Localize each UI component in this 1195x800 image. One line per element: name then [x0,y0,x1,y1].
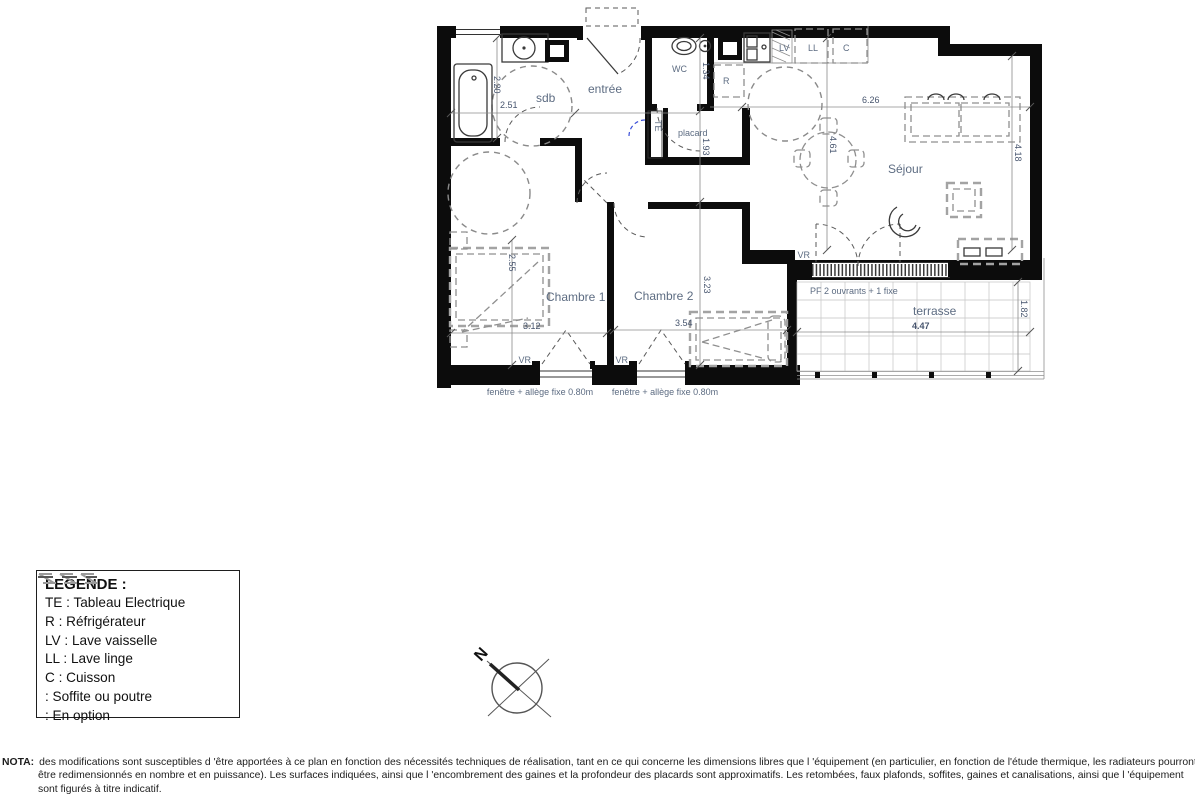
label-c: C [843,43,850,53]
sejour-armchair [889,207,920,237]
sejour-bay-window [806,261,954,278]
label-chambre1: Chambre 1 [546,290,606,304]
dim-wc-height: 1.34 [701,62,711,80]
entry-landing [586,8,638,26]
nota-text: NOTA:des modifications sont susceptibles… [2,756,1195,796]
pf-leaf-2 [858,224,900,266]
legend-item-ll: LL : Lave linge [45,650,231,669]
pf-leaf-1 [816,224,858,266]
label-chambre2: Chambre 2 [634,289,694,303]
label-lv: LV [779,43,789,53]
legend-item-te: TE : Tableau Electrique [45,594,231,613]
sdb-door [505,107,540,142]
sejour-sofa [905,94,1020,142]
chambre2-bed [690,312,787,366]
sejour-dining-table [794,118,864,206]
label-pf: PF 2 ouvrants + 1 fixe [810,286,898,296]
label-vr-1: VR [518,355,531,365]
nota-prefix: NOTA: [2,757,34,768]
bedroom-window-1 [532,361,595,383]
label-fenetre-2: fenêtre + allège fixe 0.80m [612,387,718,397]
dim-sdb-width: 2.51 [500,100,518,110]
bedroom-window-2 [629,361,690,383]
label-placard: placard [678,128,708,138]
dim-chambre1-width: 3.12 [523,321,541,331]
legend-item-c: C : Cuisson [45,669,231,688]
dim-sdb-height: 2.20 [492,76,502,94]
legend-item-r: R : Réfrigérateur [45,613,231,632]
label-te: TE [653,120,663,132]
label-entree: entrée [588,82,622,96]
top-window [456,30,500,35]
label-vr-3: VR [797,250,810,260]
toilet [672,38,711,55]
interior-walls [437,26,795,365]
dim-chambre2-height: 3.23 [702,276,712,294]
north-arrow: N [471,645,551,717]
dim-terrasse-height: 1.82 [1019,300,1029,318]
dim-hall-height: 1.93 [701,138,711,156]
north-letter: N [471,645,491,665]
label-r: R [723,76,730,86]
dim-sejour-height-left: 4.61 [828,136,838,154]
dim-chambre2-width: 3.54 [675,318,693,328]
soffite-circles [448,66,822,234]
te-door-blue [629,120,645,136]
dim-sejour-width: 6.26 [862,95,880,105]
dim-sejour-height-right: 4.18 [1013,144,1023,162]
nota-body: des modifications sont susceptibles d 'ê… [38,757,1195,795]
page: 2.20 2.51 1.34 1.93 6.26 4.61 4.18 3.23 … [0,0,1195,800]
bathtub [454,64,492,142]
label-ll: LL [808,43,818,53]
entry-door-leaf [587,38,618,74]
label-sejour: Séjour [888,162,923,176]
label-terrasse: terrasse [913,304,957,318]
label-wc: WC [672,64,687,74]
label-sdb: sdb [536,91,556,105]
legend-box: LEGENDE : TE : Tableau Electrique R : Ré… [36,570,240,718]
dim-chambre1-height: 2.55 [507,254,517,272]
legend-item-soffite: : Soffite ou poutre [45,688,231,707]
option-symbol-icon [37,571,99,582]
label-vr-2: VR [615,355,628,365]
bathroom-sink [502,34,548,62]
legend-item-lv: LV : Lave vaisselle [45,632,231,651]
chambre2-door [614,203,648,237]
legend-item-option: : En option [45,707,231,726]
label-fenetre-1: fenêtre + allège fixe 0.80m [487,387,593,397]
dim-terrasse-width: 4.47 [912,321,930,331]
sejour-side-table [947,183,981,217]
